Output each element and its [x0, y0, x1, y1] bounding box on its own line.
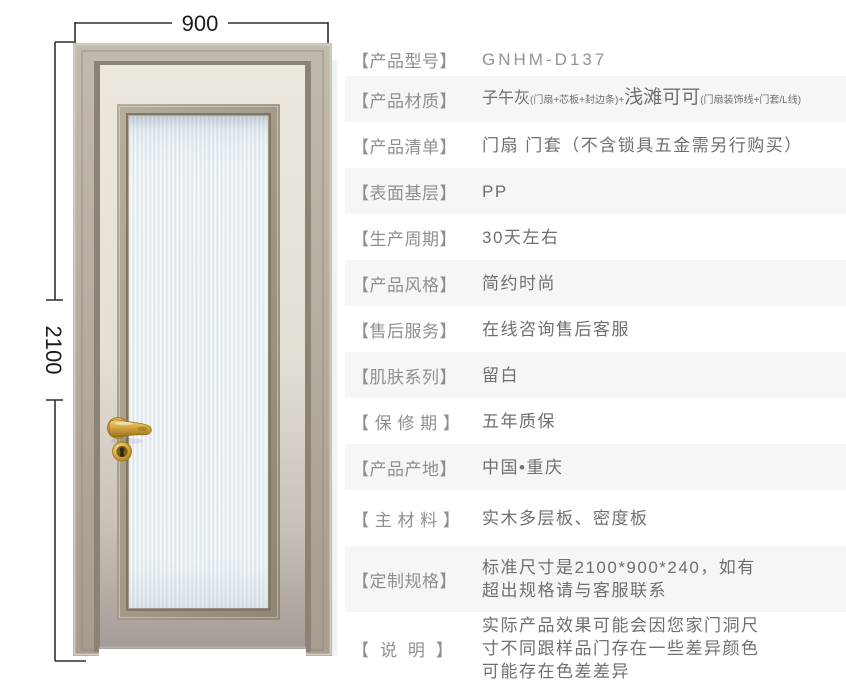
spec-row-custom-size: 【定制规格】 标准尺寸是2100*900*240，如有 超出规格请与客服联系	[345, 546, 846, 612]
spec-row-warranty: 【 保 修 期 】 五年质保	[345, 398, 846, 444]
glass-panel	[117, 104, 280, 620]
spec-value: 子午灰(门扇+芯板+封边条)+浅滩可可(门扇装饰线+门套/L线)	[482, 86, 801, 112]
spec-value: GNHM-D137	[482, 48, 607, 71]
product-spec-sheet: 900 2100 【产品型号】 GNHM-D137 【产品材质】 子午灰(门扇+…	[0, 0, 846, 685]
spec-row-surface: 【表面基层】 PP	[345, 168, 846, 214]
keyhole-icon	[113, 442, 132, 461]
spec-label: 【产品材质】	[352, 87, 482, 112]
spec-label: 【产品清单】	[352, 133, 482, 158]
spec-value: 实际产品效果可能会因您家门洞尺 寸不同跟样品门存在一些差异颜色 可能存在色差差异	[482, 614, 760, 683]
spec-label: 【 主 材 料 】	[352, 506, 482, 531]
spec-label: 【表面基层】	[352, 179, 482, 204]
spec-row-material: 【产品材质】 子午灰(门扇+芯板+封边条)+浅滩可可(门扇装饰线+门套/L线)	[345, 76, 846, 122]
spec-label: 【定制规格】	[352, 567, 482, 592]
spec-value: 中国•重庆	[482, 456, 563, 479]
spec-label: 【 说 明 】	[352, 636, 482, 661]
spec-row-after-sales: 【售后服务】 在线咨询售后客服	[345, 306, 846, 352]
spec-row-main-material: 【 主 材 料 】 实木多层板、密度板	[345, 490, 846, 546]
spec-label: 【产品风格】	[352, 271, 482, 296]
material-parts-1: (门扇+芯板+封边条)+	[530, 95, 624, 106]
spec-value: 实木多层板、密度板	[482, 507, 649, 530]
dimension-width-value: 900	[182, 11, 219, 36]
spec-row-production-cycle: 【生产周期】 30天左右	[345, 214, 846, 260]
spec-label: 【产品型号】	[352, 47, 482, 72]
spec-table: 【产品型号】 GNHM-D137 【产品材质】 子午灰(门扇+芯板+封边条)+浅…	[345, 42, 846, 685]
material-parts-2: (门扇装饰线+门套/L线)	[700, 95, 801, 106]
spec-row-contents: 【产品清单】 门扇 门套（不含锁具五金需另行购买）	[345, 122, 846, 168]
spec-label: 【肌肤系列】	[352, 363, 482, 388]
floor-line	[99, 647, 306, 664]
spec-row-model: 【产品型号】 GNHM-D137	[345, 42, 846, 76]
spec-label: 【 保 修 期 】	[352, 409, 482, 434]
dimension-height-value: 2100	[41, 326, 66, 375]
spec-row-note: 【 说 明 】 实际产品效果可能会因您家门洞尺 寸不同跟样品门存在一些差异颜色 …	[345, 612, 846, 685]
spec-label: 【生产周期】	[352, 225, 482, 250]
spec-value: 标准尺寸是2100*900*240，如有 超出规格请与客服联系	[482, 556, 756, 602]
spec-label: 【售后服务】	[352, 317, 482, 342]
spec-value: 门扇 门套（不含锁具五金需另行购买）	[482, 134, 803, 157]
spec-value: PP	[482, 180, 508, 203]
spec-value: 在线咨询售后客服	[482, 318, 630, 341]
material-color-2: 浅滩可可	[624, 87, 700, 108]
spec-value: 留白	[482, 364, 519, 387]
spec-value: 简约时尚	[482, 272, 556, 295]
spec-row-series: 【肌肤系列】 留白	[345, 352, 846, 398]
spec-label: 【产品产地】	[352, 455, 482, 480]
spec-row-style: 【产品风格】 简约时尚	[345, 260, 846, 306]
door-illustration: 900 2100	[0, 0, 345, 685]
material-color-1: 子午灰	[482, 90, 530, 107]
spec-row-origin: 【产品产地】 中国•重庆	[345, 444, 846, 490]
spec-value: 30天左右	[482, 226, 559, 249]
spec-value: 五年质保	[482, 410, 556, 433]
